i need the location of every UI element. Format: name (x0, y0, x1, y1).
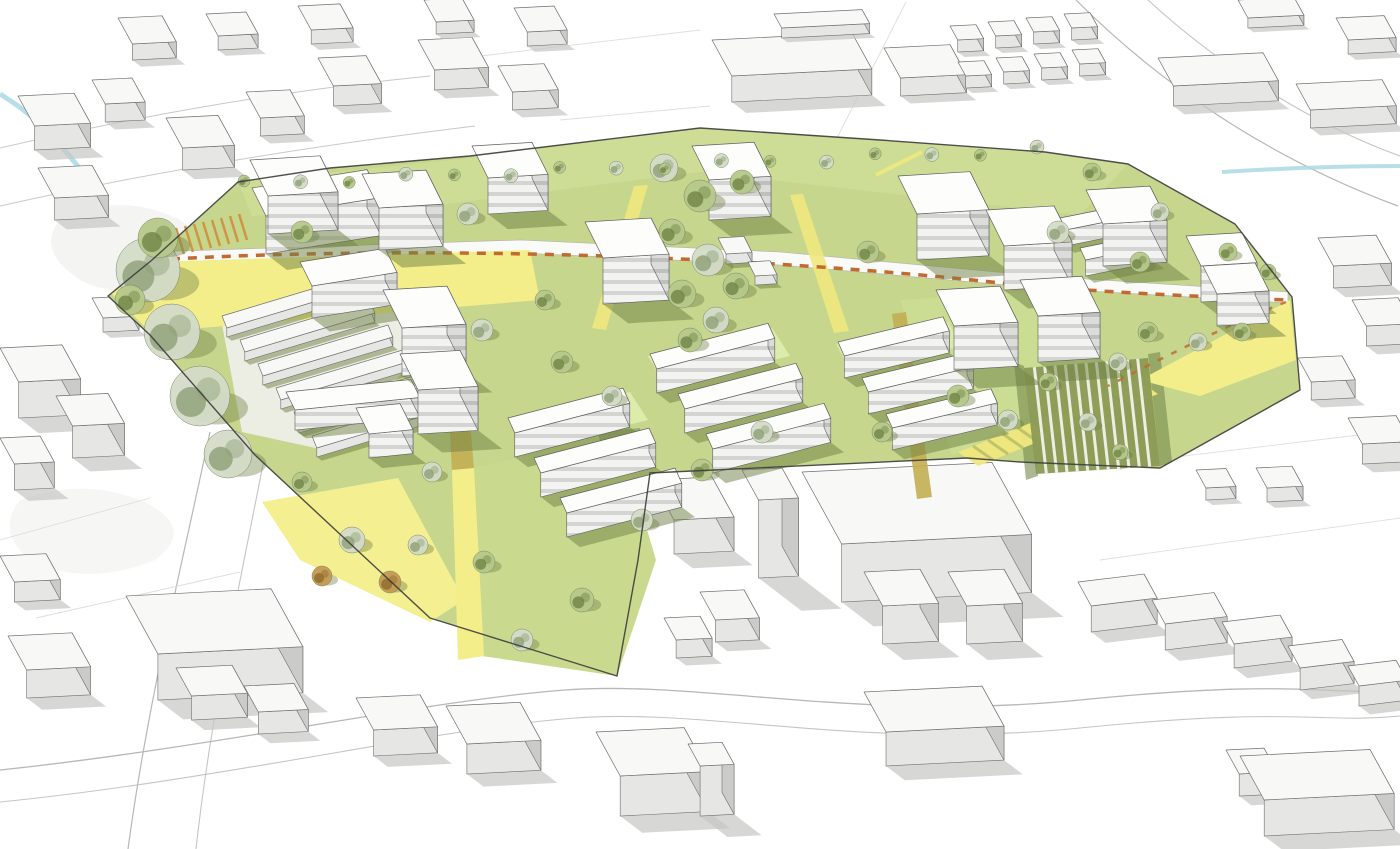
tree-canopy-blob (467, 207, 476, 216)
tree-canopy-blob (931, 150, 937, 156)
tree (343, 176, 355, 188)
tree-canopy-blob (225, 439, 244, 458)
building-roof (1296, 80, 1396, 110)
tree-canopy-blob (769, 158, 774, 163)
building-roof (126, 589, 303, 654)
tree-canopy-blob (1091, 166, 1098, 173)
tree-canopy-blob (417, 539, 425, 547)
tree-canopy-blob (734, 278, 744, 288)
tree (504, 169, 518, 183)
tree-canopy-blob (881, 426, 889, 434)
tree-canopy-blob (1159, 206, 1166, 213)
context-building (1296, 80, 1400, 136)
tree (294, 175, 308, 189)
masterplan-rendering-stage (0, 0, 1400, 849)
tree-canopy-blob (1197, 336, 1204, 343)
tree-canopy-blob (521, 633, 530, 642)
tree-canopy-blob (1047, 376, 1054, 383)
tree-canopy-blob (301, 225, 310, 234)
tree-canopy-blob (706, 250, 719, 263)
tree-canopy-blob (169, 315, 191, 337)
tree-canopy-blob (680, 285, 691, 296)
tree-canopy-blob (615, 164, 621, 170)
tree-canopy-blob (664, 165, 669, 170)
tree (448, 169, 460, 181)
tree-canopy-blob (510, 171, 516, 177)
tree-canopy-blob (641, 513, 650, 522)
tree (925, 148, 939, 162)
tree (764, 155, 776, 167)
tree-canopy-blob (128, 291, 140, 303)
building-roof (1240, 750, 1394, 801)
tree-canopy-blob (721, 156, 727, 162)
context-building (1240, 750, 1400, 849)
building-wall-south (1366, 324, 1400, 346)
building-roof (864, 686, 1004, 732)
tree-canopy-blob (481, 323, 490, 332)
tree (659, 163, 671, 175)
tree-canopy-blob (581, 593, 591, 603)
tree-canopy-blob (300, 177, 306, 183)
tree (609, 161, 623, 175)
tree-canopy-blob (559, 164, 564, 169)
tree-canopy-blob (698, 186, 711, 199)
tree-canopy-blob (348, 179, 353, 184)
tree-canopy-blob (301, 476, 309, 484)
tree-canopy-blob (1119, 447, 1125, 453)
tree (399, 167, 413, 181)
tree-canopy-blob (196, 377, 220, 401)
tree-canopy-blob (1147, 326, 1155, 334)
building-wall-south (1362, 442, 1400, 464)
tree-canopy-blob (826, 158, 832, 164)
building-roof (1158, 53, 1278, 86)
building-wall-south (886, 726, 1004, 766)
tree-canopy-blob (1057, 225, 1066, 234)
building-wall-south (901, 75, 967, 96)
tree-canopy-blob (1117, 356, 1124, 363)
tree-canopy-blob (1036, 143, 1042, 149)
tree-canopy-blob (1227, 246, 1234, 253)
building-roof (1238, 0, 1304, 18)
tree (820, 155, 834, 169)
tree-canopy-blob (957, 389, 966, 398)
tree-canopy-blob (761, 425, 770, 434)
context-building (774, 10, 875, 43)
tree-canopy-blob (741, 175, 751, 185)
tree-canopy-blob (483, 555, 492, 564)
tree (714, 154, 728, 168)
tree-canopy-blob (561, 355, 570, 364)
tree-canopy-blob (1007, 414, 1015, 422)
tree-canopy-blob (350, 532, 360, 542)
tree (554, 161, 566, 173)
tree-canopy-blob (1241, 326, 1248, 333)
tree (974, 149, 986, 161)
tree-canopy-blob (670, 224, 680, 234)
tree-canopy-blob (544, 294, 552, 302)
tree-canopy-blob (689, 333, 699, 343)
tree-canopy-blob (1087, 416, 1094, 423)
tree-canopy-blob (321, 570, 329, 578)
tree (869, 148, 881, 160)
tree-canopy-blob (874, 150, 879, 155)
tree-canopy-blob (431, 466, 439, 474)
tree-canopy-blob (405, 170, 411, 176)
tree-canopy-blob (454, 171, 459, 176)
tree-canopy-blob (1139, 256, 1147, 264)
building-wall-south (1264, 794, 1394, 837)
tree-canopy-blob (980, 152, 985, 157)
tree-canopy-blob (611, 390, 619, 398)
masterplan-svg (0, 0, 1400, 849)
building-wall-south (1348, 38, 1396, 54)
tree-canopy-blob (156, 226, 172, 242)
tree-canopy-blob (867, 245, 876, 254)
tree-canopy-blob (714, 312, 724, 322)
